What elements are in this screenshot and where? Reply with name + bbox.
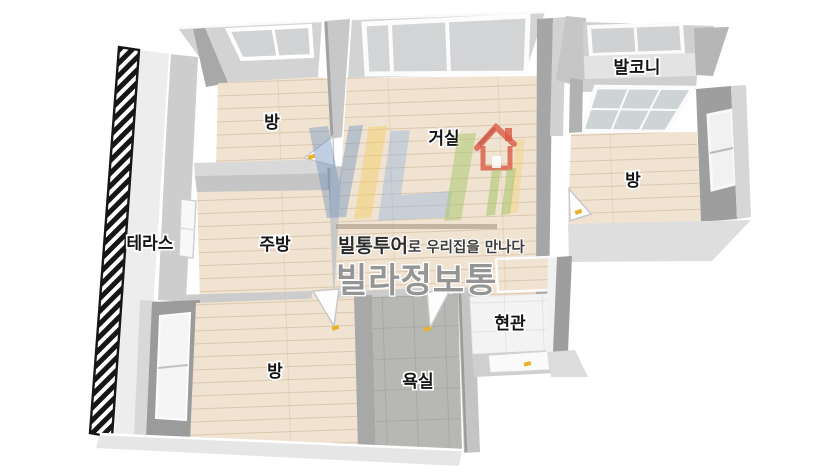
living-room-window-mullion-left <box>390 25 392 74</box>
bedroom-right <box>568 76 751 263</box>
house-door <box>492 156 501 168</box>
floorplan-svg: 테라스 방 거실 발코니 방 주방 방 욕실 현관 빌통투어로 우리집을 만나다… <box>0 0 840 472</box>
bedroom-right-south-wall <box>568 220 751 263</box>
bedroom-top-left <box>178 21 332 193</box>
watermark-tagline-suffix: 로 우리집을 만나다 <box>408 238 525 256</box>
watermark-tagline-brand: 빌통투어 <box>338 235 408 257</box>
watermark-title: 빌라정보통 <box>336 261 497 301</box>
room-label-entrance: 현관 <box>494 314 526 334</box>
entrance-hall-wood <box>496 257 551 292</box>
bedroom-top-left-south-wall-face <box>195 173 331 193</box>
entrance-door <box>488 351 550 373</box>
room-label-kitchen: 주방 <box>259 235 291 255</box>
grid-window-mullion-h <box>589 109 680 110</box>
room-label-bathroom: 욕실 <box>402 372 433 392</box>
floorplan-image: 테라스 방 거실 발코니 방 주방 방 욕실 현관 빌통투어로 우리집을 만나다… <box>0 0 840 472</box>
room-label-living-room: 거실 <box>428 129 459 149</box>
room-label-bedroom-bottom-left: 방 <box>267 362 283 382</box>
watermark-divider-bar <box>336 224 497 229</box>
entrance-east-wall-cap <box>547 350 588 377</box>
bedroom-right-south-wall-edge <box>569 262 711 263</box>
balcony-east-wall <box>694 27 729 76</box>
kitchen <box>179 190 334 308</box>
bedroom-right-west-wedge <box>569 78 583 133</box>
room-label-bedroom-top-left: 방 <box>264 113 280 133</box>
room-label-balcony: 발코니 <box>614 58 661 78</box>
balcony-window-mullion <box>635 26 637 54</box>
room-label-bedroom-right: 방 <box>625 171 641 191</box>
room-label-terrace: 테라스 <box>127 234 174 254</box>
bedroom-top-left-window <box>228 26 312 59</box>
living-room-window-mullion-right <box>447 22 449 72</box>
bedroom-bottom-left <box>134 289 376 451</box>
